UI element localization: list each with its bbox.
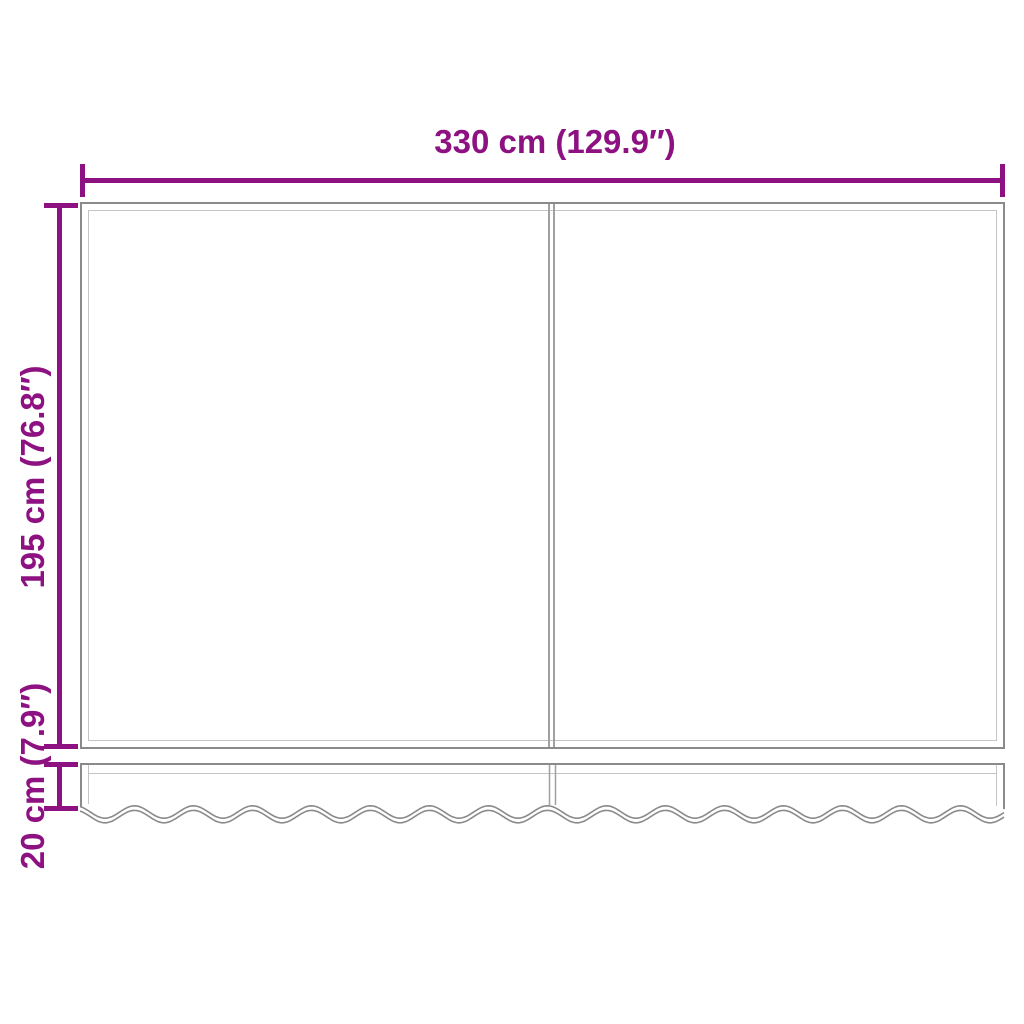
- valance-strip: [80, 763, 1005, 827]
- awning-fabric-dimension-diagram: 330 cm (129.9″) 195 cm (76.8″) 20 cm (7.…: [0, 0, 1024, 1024]
- valance-height-dimension-tick-bottom: [44, 806, 78, 811]
- fabric-panel-hem-line: [88, 210, 997, 741]
- valance-height-dimension-line: [57, 764, 62, 809]
- height-dimension-label: 195 cm (76.8″): [15, 365, 51, 588]
- width-dimension-tick-left: [80, 164, 85, 197]
- valance-height-dimension-label: 20 cm (7.9″): [15, 683, 51, 869]
- height-dimension-line: [57, 205, 62, 748]
- fabric-panel-center-seam: [548, 204, 555, 747]
- fabric-panel: [80, 202, 1005, 749]
- height-dimension-tick-top: [44, 203, 78, 208]
- width-dimension-tick-right: [1000, 164, 1005, 197]
- width-dimension-line: [82, 178, 1003, 183]
- valance-height-dimension-tick-top: [44, 762, 78, 767]
- width-dimension-label: 330 cm (129.9″): [434, 124, 675, 160]
